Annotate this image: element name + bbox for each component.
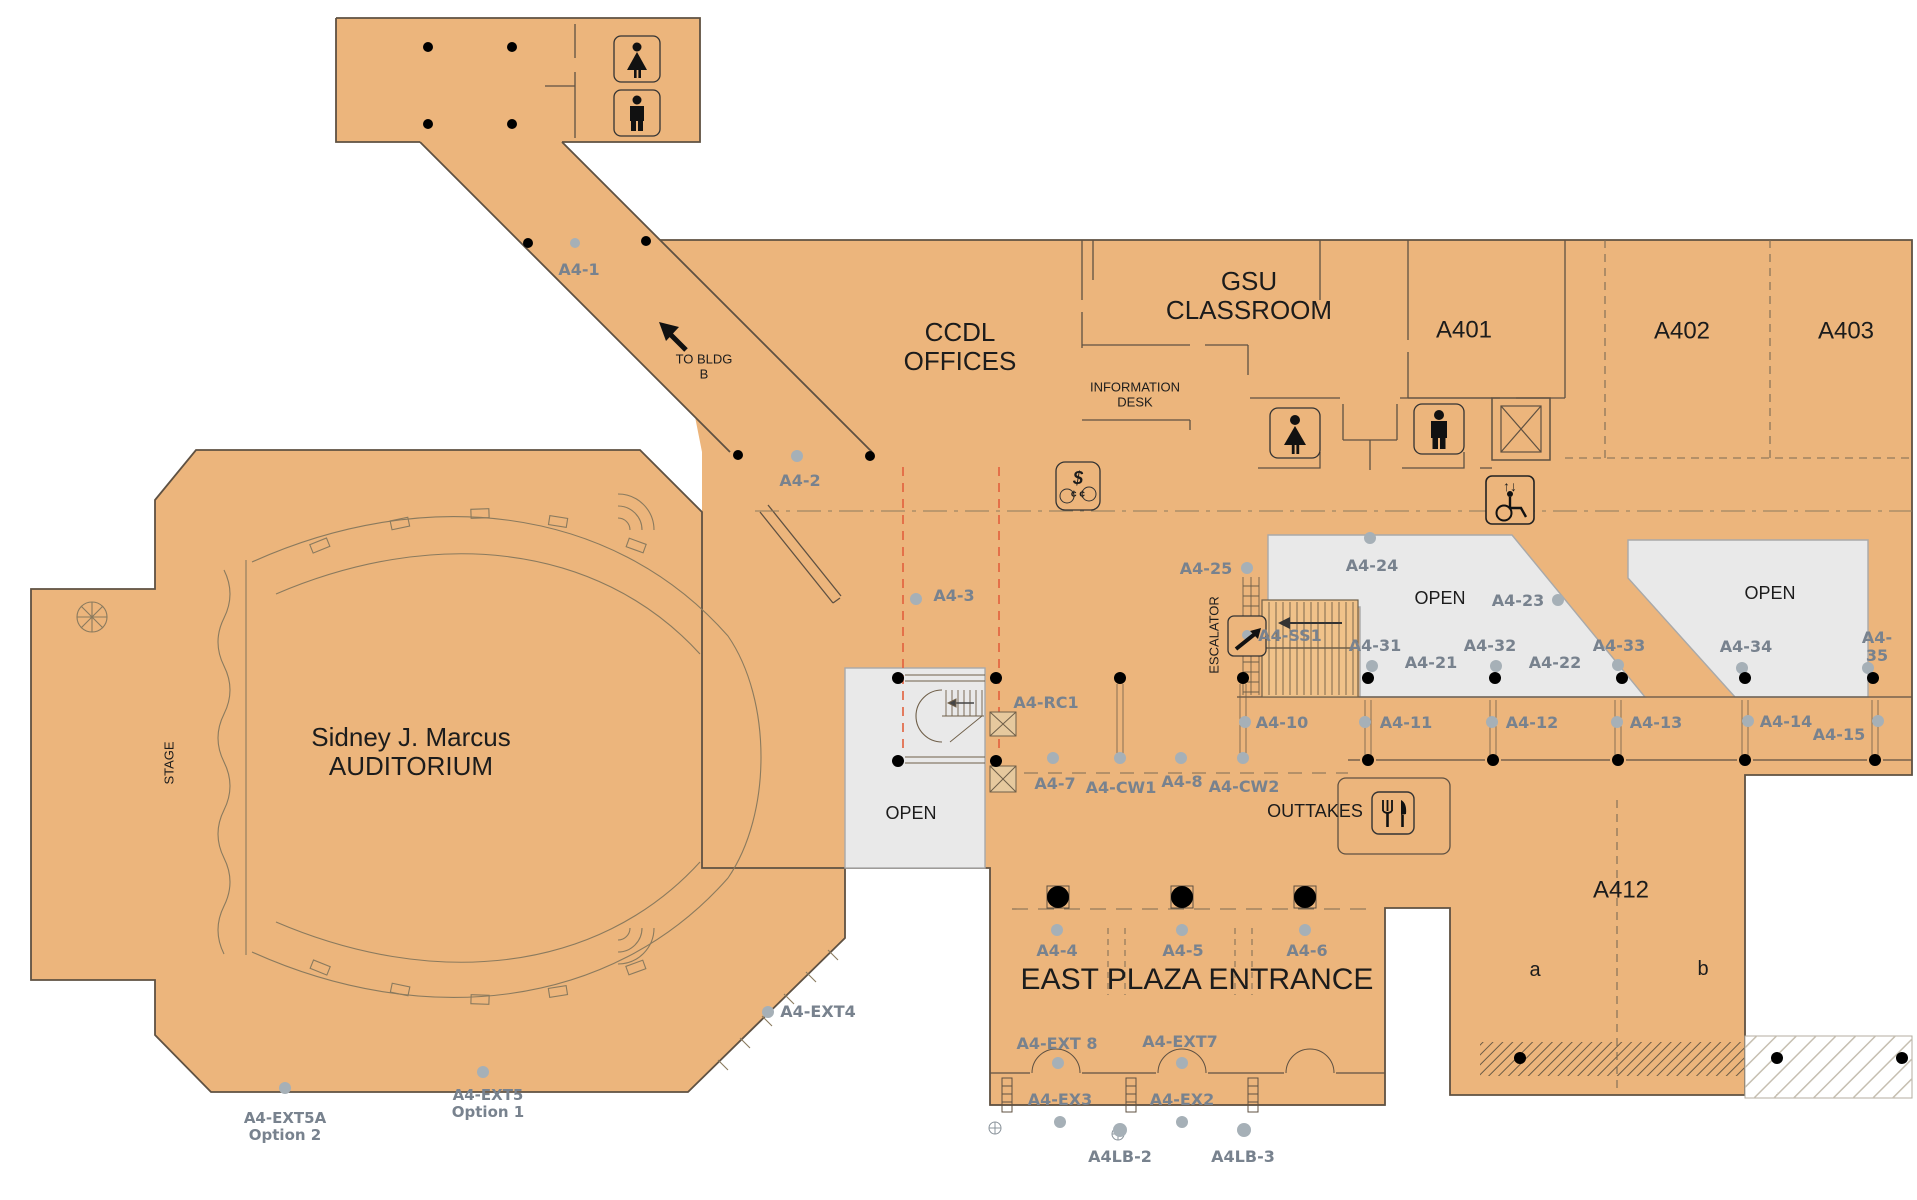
womens-restroom-icon-central: [1270, 408, 1320, 458]
stair-ss1: [1262, 600, 1358, 697]
money-machines-icon: [1056, 462, 1100, 510]
food-service-icon: [1372, 792, 1414, 834]
wheelchair-lift-icon: [1486, 476, 1534, 524]
mens-restroom-icon-north: [614, 90, 660, 136]
escalator-icon: [1228, 616, 1266, 656]
east-hatch-band-pattern: [1745, 1036, 1912, 1098]
spiral-stair-icon: [77, 602, 107, 632]
floor-plan: Sidney J. Marcus AUDITORIUM STAGE CCDL O…: [0, 0, 1917, 1200]
womens-restroom-icon-north: [614, 36, 660, 82]
mens-restroom-icon-central: [1414, 404, 1464, 454]
floor-plan-drawing: [0, 0, 1917, 1200]
